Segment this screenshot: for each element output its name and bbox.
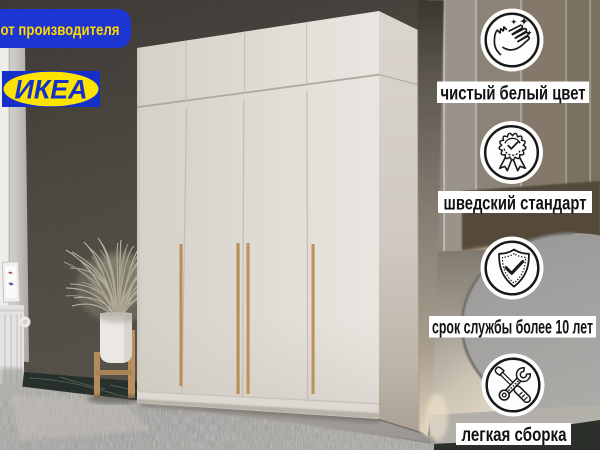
svg-text:шведский стандарт: шведский стандарт <box>444 194 587 215</box>
svg-text:чистый белый цвет: чистый белый цвет <box>441 84 586 105</box>
svg-text:от производителя: от производителя <box>1 22 120 39</box>
svg-text:ИКЕА: ИКЕА <box>15 75 88 105</box>
svg-text:легкая сборка: легкая сборка <box>462 425 567 446</box>
svg-text:срок службы более 10 лет: срок службы более 10 лет <box>432 318 593 339</box>
